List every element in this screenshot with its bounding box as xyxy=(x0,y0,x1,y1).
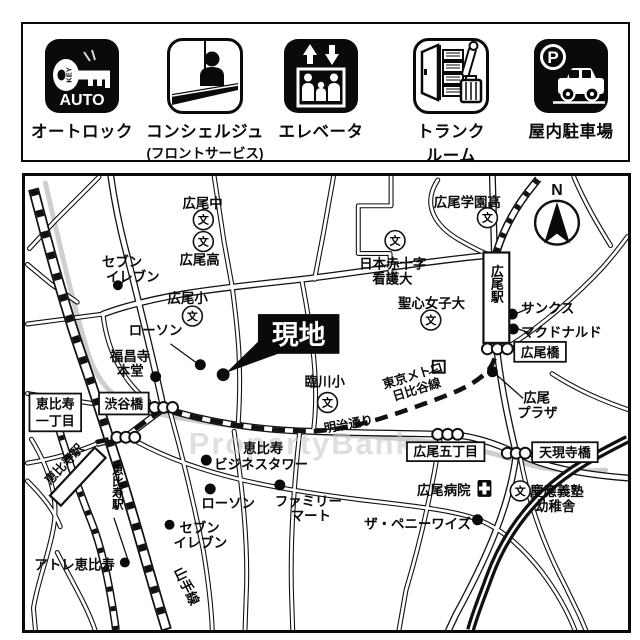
ebisu-1-chome-label2: 一丁目 xyxy=(36,413,75,428)
concierge-desk-icon xyxy=(167,38,243,114)
poi-lawson-s: ローソン xyxy=(201,496,255,511)
poi-seveneleven-s-1: セブン xyxy=(179,520,219,536)
poi-biztower-2: ビジネスタワー xyxy=(214,457,308,472)
amenity-label: コンシェルジュ xyxy=(145,118,265,142)
school-hiroo-es: 広尾小 xyxy=(168,290,209,306)
elevator-icon xyxy=(283,38,359,114)
school-symbol: 文 xyxy=(425,313,436,327)
school-symbol: 文 xyxy=(322,395,333,409)
compass-north: N xyxy=(535,182,579,245)
amenity-trunk-room: トランク ルーム xyxy=(391,38,511,166)
amenity-icon-row: KEY AUTO オートロック コンシェルジュ (フロントサービス) xyxy=(21,22,630,162)
amenity-label: 屋内駐車場 xyxy=(511,118,631,142)
amenity-concierge: コンシェルジュ (フロントサービス) xyxy=(145,38,265,162)
watermark: PropertyBank xyxy=(189,426,415,461)
hiroo-5-chome-label: 広尾五丁目 xyxy=(413,444,478,459)
ebisu-1-chome-label: 恵比寿 xyxy=(36,396,75,411)
auto-badge: AUTO xyxy=(59,92,104,109)
school-symbol: 文 xyxy=(390,234,401,248)
map-canvas: PropertyBank 恵比寿駅 恵比寿駅 広尾駅 恵比寿 一丁目 xyxy=(25,176,628,630)
key-word: KEY xyxy=(65,67,74,82)
amenity-elevator: エレベータ xyxy=(261,38,381,142)
amenity-indoor-parking: P 屋内駐車場 xyxy=(511,38,631,142)
poi-lawson-n: ローソン xyxy=(129,323,183,338)
indoor-parking-icon: P xyxy=(533,38,609,114)
metro-rail-north xyxy=(496,179,538,253)
amenity-label-line2: ルーム xyxy=(391,142,511,166)
hiroo-station-label: 広尾駅 xyxy=(489,264,504,305)
school-symbol: 文 xyxy=(187,309,198,323)
school-symbol: 文 xyxy=(515,484,526,498)
poi-fukushoji-2: 本堂 xyxy=(117,363,144,379)
poi-hiroo-plaza-1: 広尾 xyxy=(523,390,550,406)
area-map: PropertyBank 恵比寿駅 恵比寿駅 広尾駅 恵比寿 一丁目 xyxy=(22,173,631,633)
school-symbol: 文 xyxy=(198,213,209,227)
poi-familymart-1: ファミリー xyxy=(275,494,342,509)
trunk-room-icon xyxy=(413,38,489,114)
school-symbol: 文 xyxy=(198,235,209,249)
amenity-autolock: KEY AUTO オートロック xyxy=(22,38,142,142)
school-seishin: 聖心女子大 xyxy=(398,295,466,311)
poi-seveneleven-n-2: イレブン xyxy=(106,268,160,284)
school-hiroo-jhs: 広尾中 xyxy=(182,195,222,211)
poi-familymart-2: マート xyxy=(291,509,331,524)
poi-hiroo-plaza-2: プラザ xyxy=(517,405,558,420)
school-keio-2: 幼稚舎 xyxy=(535,498,576,514)
shibuya-bashi-label: 渋谷橋 xyxy=(104,396,143,411)
compass-n-label: N xyxy=(551,182,562,199)
school-rinsen-es: 臨川小 xyxy=(305,374,346,390)
hiroo-bashi-label: 広尾橋 xyxy=(521,345,560,360)
school-hiroo-gakuen: 広尾学園高 xyxy=(434,194,501,210)
hiroo-hospital-label: 広尾病院 xyxy=(417,482,471,498)
school-keio-1: 慶應義塾 xyxy=(530,483,584,499)
school-hiroo-hs: 広尾高 xyxy=(179,251,219,267)
school-redcross-2: 看護大 xyxy=(371,270,413,286)
amenity-label: オートロック xyxy=(22,118,142,142)
poi-fukushoji-1: 福昌寺 xyxy=(109,348,150,364)
amenity-label: エレベータ xyxy=(261,118,381,142)
ebisu-station-label: 恵比寿駅 xyxy=(111,463,125,510)
poi-biztower-1: 恵比寿 xyxy=(243,440,283,456)
poi-seveneleven-n-1: セブン xyxy=(102,253,142,269)
poi-atre-ebisu: アトレ恵比寿 xyxy=(34,556,114,572)
amenity-label: トランク xyxy=(391,118,511,142)
parking-p: P xyxy=(547,48,558,67)
amenity-sublabel: (フロントサービス) xyxy=(145,142,265,162)
poi-seveneleven-s-2: イレブン xyxy=(174,535,228,551)
poi-pennywise: ザ・ペニーワイズ xyxy=(364,516,471,532)
poi-mcdonalds: マクドナルド xyxy=(521,325,601,340)
poi-sunkus: サンクス xyxy=(521,301,574,316)
yamanote-line-label: 山手線 xyxy=(171,564,203,608)
autolock-key-icon: KEY AUTO xyxy=(44,38,120,114)
school-redcross-1: 日本赤十字 xyxy=(359,255,426,271)
school-symbol: 文 xyxy=(482,211,493,225)
hospital-icon xyxy=(478,480,492,497)
tengenji-bashi-label: 天現寺橋 xyxy=(539,445,591,460)
site-label: 現地 xyxy=(272,320,326,350)
